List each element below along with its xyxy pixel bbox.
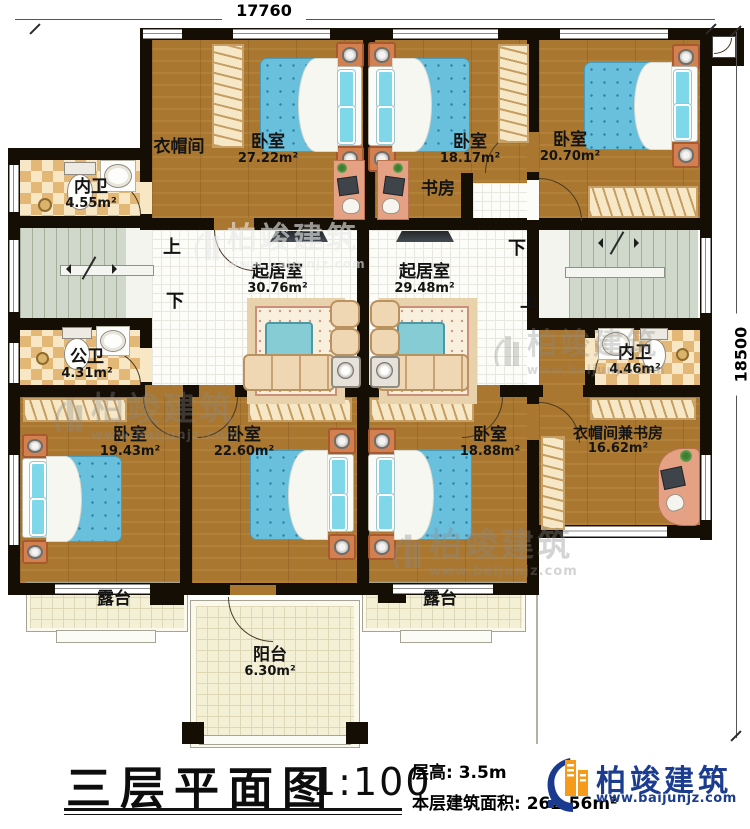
computer-monitor: [383, 176, 405, 197]
door-gap: [199, 385, 235, 397]
room-area: 18.88m²: [444, 445, 536, 459]
pillow: [377, 106, 394, 144]
room-name: 露台: [82, 590, 146, 609]
room-area: 20.70m²: [520, 150, 620, 164]
floor-plan-canvas: 衣帽间 卧室 27.22m² 卧室 18.17m² 卧室 20.70m² 内卫 …: [0, 0, 750, 829]
armchair: [330, 300, 360, 328]
room-name: 内卫: [58, 178, 124, 197]
room-label-terrace: 露台: [82, 590, 146, 609]
room-area: 6.30m²: [238, 665, 302, 679]
room-label-cloak-study: 衣帽间兼书房 16.62m²: [562, 425, 674, 456]
pillow: [330, 458, 347, 495]
brand-logo-icon: [540, 750, 594, 818]
room-area: 22.60m²: [198, 445, 290, 459]
chair: [382, 198, 400, 214]
room-area: 4.31m²: [54, 367, 120, 381]
lamp: [337, 362, 354, 379]
door-gap: [230, 585, 276, 595]
room-name: 书房: [408, 180, 468, 199]
chair: [342, 198, 360, 214]
pillow: [30, 498, 46, 536]
closet: [23, 398, 127, 422]
balcony-parapet: [199, 735, 351, 745]
room-label-bedroom: 卧室 27.22m²: [218, 133, 318, 166]
window: [9, 343, 19, 383]
pillow: [674, 104, 691, 140]
pillow: [30, 462, 46, 500]
dimension-tick: [29, 23, 40, 34]
pillow: [674, 70, 691, 106]
room-label-terrace: 露台: [408, 590, 472, 609]
room-name: 卧室: [520, 131, 620, 150]
room-area: 30.76m²: [225, 282, 330, 296]
pillow: [377, 458, 394, 495]
computer-monitor: [337, 176, 359, 197]
bed-duvet: [634, 62, 672, 150]
pillow: [338, 70, 355, 108]
dimension-top-value: 17760: [222, 1, 306, 20]
closet: [590, 398, 696, 420]
pillow: [377, 70, 394, 108]
wall-stub: [378, 595, 406, 603]
title-underline: [64, 814, 402, 815]
bed-duvet: [288, 450, 328, 540]
nightstand: [368, 428, 396, 454]
room-area: 19.43m²: [86, 445, 174, 459]
stairs-left-arrow: [66, 264, 71, 274]
pillow: [330, 494, 347, 531]
floor-drain: [38, 198, 52, 212]
tv: [270, 231, 328, 242]
stairs-right-arrow: [634, 238, 639, 248]
door-gap: [543, 385, 583, 397]
stair-up-label: 上: [163, 233, 181, 259]
room-name: 卧室: [420, 133, 520, 152]
plant: [393, 163, 403, 173]
room-label-bath: 公卫 4.31m²: [54, 348, 120, 381]
room-area: 27.22m²: [218, 152, 318, 166]
nightstand: [672, 142, 700, 168]
window: [143, 29, 182, 39]
wall-bedroom-br-right: [527, 538, 539, 595]
balcony-post-right: [346, 722, 368, 744]
stair-up-label: 上: [520, 287, 538, 313]
room-name: 起居室: [372, 263, 477, 282]
window: [393, 29, 498, 39]
room-label-bedroom: 卧室 22.60m²: [198, 426, 290, 459]
door-gap: [527, 180, 539, 220]
dimension-line-top: [15, 19, 715, 20]
nightstand: [328, 428, 356, 454]
floor-drain: [676, 348, 689, 361]
terrace-right-parapet: [400, 630, 492, 643]
room-name: 卧室: [218, 133, 318, 152]
floor-drain: [36, 352, 49, 365]
closet: [588, 186, 698, 218]
nightstand: [22, 540, 48, 564]
room-area: 18.17m²: [420, 152, 520, 166]
window: [701, 238, 711, 313]
window: [9, 240, 19, 312]
room-area: 4.46m²: [602, 363, 668, 377]
nightstand: [22, 434, 48, 458]
tv: [396, 231, 454, 242]
window: [563, 526, 667, 537]
armchair: [330, 328, 360, 356]
door-gap: [145, 385, 183, 397]
nightstand: [328, 534, 356, 560]
room-name: 卧室: [444, 426, 536, 445]
floor-height-text: 层高: 3.5m: [412, 758, 507, 783]
closet: [498, 44, 529, 143]
stairs-left-rail: [60, 265, 154, 276]
armchair: [370, 300, 400, 328]
room-label-living: 起居室 30.76m²: [225, 263, 330, 296]
room-name: 衣帽间: [144, 138, 214, 157]
nightstand: [336, 42, 364, 68]
room-name: 卧室: [86, 426, 174, 445]
stairs-right-rail: [565, 267, 665, 278]
room-name: 卧室: [198, 426, 290, 445]
sofa: [243, 354, 335, 391]
room-label-balcony: 阳台 6.30m²: [238, 646, 302, 679]
nightstand: [368, 534, 396, 560]
armchair: [370, 328, 400, 356]
room-name: 露台: [408, 590, 472, 609]
plant: [680, 450, 692, 462]
room-label-bath: 内卫 4.46m²: [602, 344, 668, 377]
room-label-bedroom: 卧室 20.70m²: [520, 131, 620, 164]
stairs-right-arrow: [598, 238, 603, 248]
pillow: [377, 494, 394, 531]
pillow: [338, 106, 355, 144]
room-label-bedroom: 卧室 18.88m²: [444, 426, 536, 459]
balcony-post-left: [182, 722, 204, 744]
room-label-bedroom: 卧室 18.17m²: [420, 133, 520, 166]
lamp: [376, 362, 393, 379]
room-label-living: 起居室 29.48m²: [372, 263, 477, 296]
plant: [337, 163, 347, 173]
stairs-left-arrow: [112, 264, 117, 274]
room-area: 16.62m²: [562, 442, 674, 456]
window: [9, 455, 19, 545]
window: [233, 29, 330, 39]
room-name: 内卫: [602, 344, 668, 363]
room-name: 公卫: [54, 348, 120, 367]
window: [9, 165, 19, 212]
bed-duvet: [394, 450, 434, 540]
bed-duvet: [46, 456, 82, 542]
terrace-left-parapet: [56, 630, 156, 643]
wall-bath-tl-bottom: [8, 216, 152, 228]
room-name: 衣帽间兼书房: [562, 425, 674, 442]
room-name: 阳台: [238, 646, 302, 665]
room-label-bedroom: 卧室 19.43m²: [86, 426, 174, 459]
brand-url: www.baijunjz.com: [596, 791, 737, 806]
room-area: 29.48m²: [372, 282, 477, 296]
door-gap: [214, 218, 254, 230]
window: [560, 29, 668, 39]
dimension-right-value: 18500: [732, 314, 750, 396]
door-gap: [585, 338, 595, 370]
room-name: 起居室: [225, 263, 330, 282]
room-label-cloakroom: 衣帽间: [144, 138, 214, 157]
wall-living2-right: [527, 230, 539, 330]
floor-corridor-right: [539, 330, 585, 385]
stair-down-label: 下: [508, 234, 526, 260]
room-label-study: 书房: [408, 180, 468, 199]
wall-stub: [150, 595, 184, 605]
room-area: 4.55m²: [58, 197, 124, 211]
title-underline: [64, 808, 402, 811]
door-gap: [140, 348, 152, 382]
room-label-bath: 内卫 4.55m²: [58, 178, 124, 211]
parapet-line: [536, 592, 538, 744]
stair-down-label: 下: [166, 287, 184, 313]
window: [701, 455, 711, 520]
door-gap: [140, 182, 152, 214]
building-logo-icon: [540, 750, 594, 818]
wall-jut: [8, 148, 152, 160]
